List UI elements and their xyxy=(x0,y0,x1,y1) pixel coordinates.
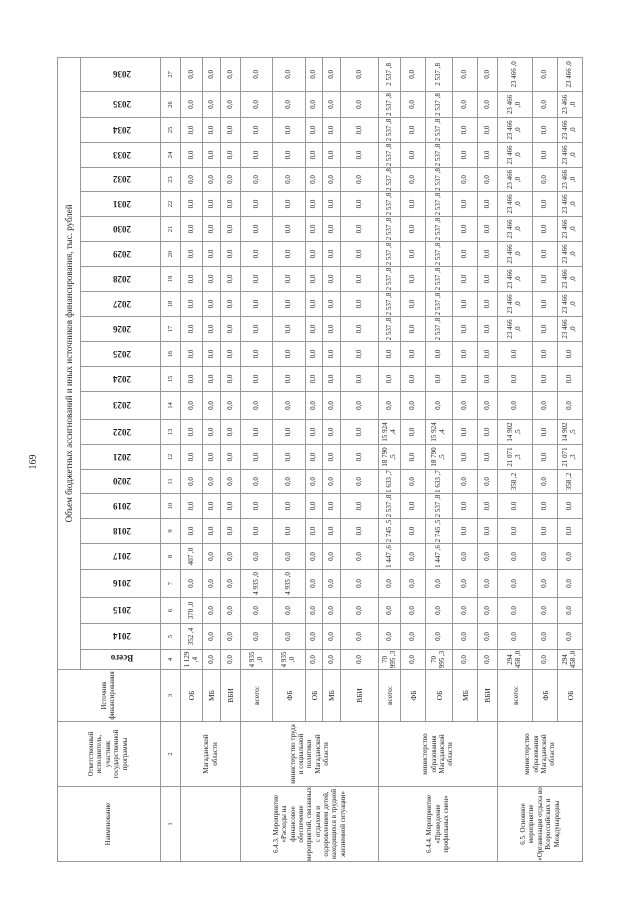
year-label: 2023 xyxy=(113,401,131,411)
value-cell: 0,0 xyxy=(273,445,306,470)
source-cell: ВБИ xyxy=(478,670,498,722)
value-cell: 0,0 xyxy=(533,192,558,217)
value-cell: 0,0 xyxy=(498,519,533,544)
value-cell: 0,0 xyxy=(401,317,426,342)
source-cell: всего: xyxy=(498,670,533,722)
value-cell: 0,0 xyxy=(221,217,241,242)
value-cell: 0,0 xyxy=(426,392,453,420)
value-cell: 0,0 xyxy=(181,168,203,192)
value-cell: 0,0 xyxy=(533,420,558,445)
value-cell: 23 466 ,0 xyxy=(558,57,583,91)
value-cell: 0,0 xyxy=(221,420,241,445)
value-cell: 0,0 xyxy=(221,168,241,192)
value-cell: 0,0 xyxy=(498,570,533,598)
column-number-cell: 24 xyxy=(161,143,181,168)
value-cell: 0,0 xyxy=(323,242,341,267)
value-cell: 0,0 xyxy=(341,267,379,292)
value-cell: 0,0 xyxy=(273,317,306,342)
value-cell: 0,0 xyxy=(533,92,558,118)
column-number-cell: 12 xyxy=(161,445,181,470)
value-cell: 1 633 ,7 xyxy=(426,470,453,494)
value-cell: 0,0 xyxy=(401,118,426,143)
source-cell: ОБ xyxy=(181,670,203,722)
value-cell: 2 745 ,5 xyxy=(426,519,453,544)
value-cell: 0,0 xyxy=(341,92,379,118)
value-cell: 2 537 ,8 xyxy=(426,57,453,91)
value-cell: 0,0 xyxy=(401,292,426,317)
value-cell: 0,0 xyxy=(221,367,241,392)
total-cell: 70 995 ,3 xyxy=(426,650,453,670)
value-cell: 0,0 xyxy=(181,267,203,292)
value-cell: 0,0 xyxy=(221,57,241,91)
value-cell: 0,0 xyxy=(453,292,478,317)
year-header: 2020 xyxy=(81,470,161,494)
value-cell: 0,0 xyxy=(241,598,273,624)
value-cell: 2 537 ,8 xyxy=(426,168,453,192)
value-cell: 0,0 xyxy=(478,317,498,342)
year-header: 2030 xyxy=(81,217,161,242)
year-label: 2021 xyxy=(113,452,131,462)
value-cell: 23 466 ,0 xyxy=(498,192,533,217)
value-cell: 0,0 xyxy=(241,494,273,519)
value-cell: 0,0 xyxy=(323,143,341,168)
value-cell: 0,0 xyxy=(181,292,203,317)
value-cell: 0,0 xyxy=(203,267,221,292)
value-cell: 0,0 xyxy=(478,624,498,650)
value-cell: 0,0 xyxy=(306,342,323,367)
value-cell: 0,0 xyxy=(341,168,379,192)
value-cell: 14 902 ,5 xyxy=(498,420,533,445)
value-cell: 0,0 xyxy=(241,470,273,494)
value-cell: 0,0 xyxy=(273,242,306,267)
year-label: 2028 xyxy=(113,274,131,284)
value-cell: 0,0 xyxy=(453,598,478,624)
value-cell: 23 466 ,0 xyxy=(558,242,583,267)
value-cell: 23 466 ,0 xyxy=(558,317,583,342)
value-cell: 0,0 xyxy=(221,624,241,650)
column-number-cell: 26 xyxy=(161,92,181,118)
column-number-cell: 20 xyxy=(161,242,181,267)
total-cell: 70 995 ,3 xyxy=(379,650,401,670)
year-label: 2033 xyxy=(113,150,131,160)
value-cell: 0,0 xyxy=(533,392,558,420)
value-cell: 0,0 xyxy=(478,118,498,143)
year-label: 2015 xyxy=(113,606,131,616)
value-cell: 0,0 xyxy=(273,420,306,445)
value-cell: 0,0 xyxy=(453,168,478,192)
value-cell: 0,0 xyxy=(533,544,558,570)
value-cell: 0,0 xyxy=(401,598,426,624)
value-cell: 0,0 xyxy=(203,392,221,420)
value-cell: 0,0 xyxy=(533,292,558,317)
value-cell: 0,0 xyxy=(221,445,241,470)
value-cell: 18 790 ,5 xyxy=(379,445,401,470)
value-cell: 0,0 xyxy=(401,57,426,91)
value-cell: 0,0 xyxy=(453,624,478,650)
value-cell: 0,0 xyxy=(241,57,273,91)
total-cell: 0,0 xyxy=(323,650,341,670)
value-cell: 0,0 xyxy=(533,494,558,519)
source-cell: ОБ xyxy=(558,670,583,722)
value-cell: 15 924 ,4 xyxy=(379,420,401,445)
year-header: 2036 xyxy=(81,57,161,91)
column-number-cell: 7 xyxy=(161,570,181,598)
value-cell: 0,0 xyxy=(341,57,379,91)
value-cell: 0,0 xyxy=(241,217,273,242)
value-cell: 0,0 xyxy=(341,292,379,317)
value-cell: 0,0 xyxy=(478,143,498,168)
value-cell: 0,0 xyxy=(533,143,558,168)
value-cell: 0,0 xyxy=(273,192,306,217)
value-cell: 0,0 xyxy=(306,519,323,544)
name-cell: 6.4.4. Мероприятие «Проведение профильны… xyxy=(379,787,498,862)
value-cell: 0,0 xyxy=(306,92,323,118)
value-cell: 0,0 xyxy=(379,367,401,392)
value-cell: 2 537 ,8 xyxy=(379,292,401,317)
header-source: Источник финансирования xyxy=(58,670,161,722)
value-cell: 0,0 xyxy=(426,342,453,367)
executor-cell: Магаданской области xyxy=(181,722,241,787)
value-cell: 0,0 xyxy=(558,570,583,598)
value-cell: 0,0 xyxy=(273,392,306,420)
source-cell: всего: xyxy=(241,670,273,722)
value-cell: 0,0 xyxy=(203,494,221,519)
value-cell: 0,0 xyxy=(401,494,426,519)
year-label: 2017 xyxy=(113,552,131,562)
value-cell: 0,0 xyxy=(306,217,323,242)
year-label: 2025 xyxy=(113,349,131,359)
value-cell: 0,0 xyxy=(426,570,453,598)
column-number-cell: 17 xyxy=(161,317,181,342)
total-cell: 0,0 xyxy=(221,650,241,670)
value-cell: 0,0 xyxy=(533,217,558,242)
column-number-cell: 16 xyxy=(161,342,181,367)
value-cell: 0,0 xyxy=(306,544,323,570)
year-label: 2034 xyxy=(113,125,131,135)
value-cell: 0,0 xyxy=(401,192,426,217)
value-cell: 0,0 xyxy=(478,544,498,570)
value-cell: 0,0 xyxy=(379,342,401,367)
value-cell: 0,0 xyxy=(241,168,273,192)
value-cell: 0,0 xyxy=(323,168,341,192)
value-cell: 0,0 xyxy=(203,624,221,650)
value-cell: 0,0 xyxy=(203,217,221,242)
value-cell: 0,0 xyxy=(323,470,341,494)
value-cell: 0,0 xyxy=(306,57,323,91)
value-cell: 0,0 xyxy=(478,292,498,317)
value-cell: 2 537 ,8 xyxy=(379,168,401,192)
value-cell: 0,0 xyxy=(341,494,379,519)
value-cell: 0,0 xyxy=(341,317,379,342)
value-cell: 0,0 xyxy=(273,519,306,544)
value-cell: 0,0 xyxy=(478,168,498,192)
value-cell: 0,0 xyxy=(323,292,341,317)
value-cell: 0,0 xyxy=(478,342,498,367)
year-label: 2018 xyxy=(113,526,131,536)
value-cell: 0,0 xyxy=(478,192,498,217)
value-cell: 0,0 xyxy=(273,624,306,650)
header-total: Всего xyxy=(81,650,161,670)
source-cell: всего: xyxy=(379,670,401,722)
value-cell: 0,0 xyxy=(241,392,273,420)
value-cell: 0,0 xyxy=(241,342,273,367)
year-header: 2033 xyxy=(81,143,161,168)
value-cell: 0,0 xyxy=(401,570,426,598)
value-cell: 0,0 xyxy=(478,420,498,445)
value-cell: 0,0 xyxy=(241,519,273,544)
source-cell: МБ xyxy=(453,670,478,722)
value-cell: 0,0 xyxy=(203,445,221,470)
value-cell: 0,0 xyxy=(323,192,341,217)
value-cell: 0,0 xyxy=(498,367,533,392)
value-cell: 23 466 ,0 xyxy=(558,267,583,292)
value-cell: 0,0 xyxy=(341,470,379,494)
value-cell: 0,0 xyxy=(401,267,426,292)
year-label: 2019 xyxy=(113,501,131,511)
value-cell: 0,0 xyxy=(203,242,221,267)
column-number-cell: 11 xyxy=(161,470,181,494)
year-header: 2023 xyxy=(81,392,161,420)
value-cell: 21 071 ,3 xyxy=(558,445,583,470)
value-cell: 0,0 xyxy=(203,143,221,168)
value-cell: 0,0 xyxy=(241,367,273,392)
value-cell: 0,0 xyxy=(478,445,498,470)
value-cell: 0,0 xyxy=(401,470,426,494)
value-cell: 0,0 xyxy=(221,92,241,118)
table-row: 6.4.4. Мероприятие «Проведение профильны… xyxy=(379,57,401,861)
header-executor: Ответственный исполнитель, участник госу… xyxy=(58,722,161,787)
year-header: 2022 xyxy=(81,420,161,445)
value-cell: 0,0 xyxy=(181,470,203,494)
total-cell: 4 935 ,0 xyxy=(241,650,273,670)
value-cell: 4 935 ,0 xyxy=(241,570,273,598)
value-cell: 0,0 xyxy=(453,317,478,342)
value-cell: 0,0 xyxy=(401,217,426,242)
value-cell: 0,0 xyxy=(221,342,241,367)
source-cell: МБ xyxy=(203,670,221,722)
total-cell: 0,0 xyxy=(203,650,221,670)
value-cell: 0,0 xyxy=(241,143,273,168)
value-cell: 0,0 xyxy=(306,267,323,292)
value-cell: 2 537 ,8 xyxy=(426,192,453,217)
value-cell: 0,0 xyxy=(323,392,341,420)
value-cell: 2 537 ,8 xyxy=(426,217,453,242)
value-cell: 0,0 xyxy=(306,118,323,143)
value-cell: 0,0 xyxy=(323,342,341,367)
total-cell: 0,0 xyxy=(533,650,558,670)
value-cell: 0,0 xyxy=(498,544,533,570)
value-cell: 0,0 xyxy=(453,445,478,470)
value-cell: 0,0 xyxy=(273,494,306,519)
value-cell: 0,0 xyxy=(478,92,498,118)
value-cell: 0,0 xyxy=(341,544,379,570)
year-header: 2028 xyxy=(81,267,161,292)
value-cell: 0,0 xyxy=(181,242,203,267)
value-cell: 0,0 xyxy=(323,544,341,570)
value-cell: 0,0 xyxy=(273,217,306,242)
value-cell: 1 447 ,6 xyxy=(379,544,401,570)
column-number-cell: 2 xyxy=(161,722,181,787)
value-cell: 0,0 xyxy=(341,367,379,392)
column-number-cell: 15 xyxy=(161,367,181,392)
value-cell: 0,0 xyxy=(306,143,323,168)
value-cell: 0,0 xyxy=(323,267,341,292)
value-cell: 0,0 xyxy=(323,519,341,544)
value-cell: 0,0 xyxy=(478,217,498,242)
page-number: 169 xyxy=(20,447,46,477)
value-cell: 0,0 xyxy=(323,598,341,624)
value-cell: 23 466 ,0 xyxy=(558,92,583,118)
value-cell: 0,0 xyxy=(241,118,273,143)
value-cell: 2 537 ,8 xyxy=(426,92,453,118)
value-cell: 0,0 xyxy=(478,470,498,494)
value-cell: 0,0 xyxy=(533,242,558,267)
column-number-cell: 1 xyxy=(161,787,181,862)
value-cell: 0,0 xyxy=(203,570,221,598)
value-cell: 0,0 xyxy=(341,624,379,650)
year-header: 2019 xyxy=(81,494,161,519)
value-cell: 0,0 xyxy=(306,168,323,192)
value-cell: 0,0 xyxy=(453,118,478,143)
value-cell: 2 537 ,8 xyxy=(426,267,453,292)
column-number-cell: 4 xyxy=(161,650,181,670)
value-cell: 0,0 xyxy=(203,92,221,118)
value-cell: 0,0 xyxy=(323,420,341,445)
value-cell: 0,0 xyxy=(498,494,533,519)
value-cell: 0,0 xyxy=(426,598,453,624)
value-cell: 0,0 xyxy=(341,392,379,420)
value-cell: 0,0 xyxy=(221,267,241,292)
value-cell: 23 466 ,0 xyxy=(498,143,533,168)
value-cell: 23 466 ,0 xyxy=(498,267,533,292)
value-cell: 0,0 xyxy=(306,470,323,494)
value-cell: 15 924 ,4 xyxy=(426,420,453,445)
value-cell: 0,0 xyxy=(241,445,273,470)
value-cell: 0,0 xyxy=(306,367,323,392)
value-cell: 0,0 xyxy=(401,367,426,392)
value-cell: 0,0 xyxy=(323,92,341,118)
value-cell: 0,0 xyxy=(306,445,323,470)
value-cell: 0,0 xyxy=(401,242,426,267)
value-cell: 0,0 xyxy=(306,420,323,445)
value-cell: 2 537 ,8 xyxy=(379,242,401,267)
value-cell: 2 537 ,8 xyxy=(379,317,401,342)
value-cell: 0,0 xyxy=(203,519,221,544)
value-cell: 0,0 xyxy=(306,598,323,624)
source-cell: ОБ xyxy=(306,670,323,722)
value-cell: 0,0 xyxy=(533,624,558,650)
total-cell: 0,0 xyxy=(478,650,498,670)
value-cell: 0,0 xyxy=(453,420,478,445)
value-cell: 2 537 ,8 xyxy=(379,192,401,217)
value-cell: 0,0 xyxy=(341,570,379,598)
value-cell: 0,0 xyxy=(533,570,558,598)
value-cell: 0,0 xyxy=(558,519,583,544)
year-header: 2018 xyxy=(81,519,161,544)
value-cell: 0,0 xyxy=(498,392,533,420)
value-cell: 0,0 xyxy=(401,342,426,367)
value-cell: 0,0 xyxy=(203,292,221,317)
value-cell: 0,0 xyxy=(221,292,241,317)
value-cell: 0,0 xyxy=(341,192,379,217)
value-cell: 0,0 xyxy=(241,92,273,118)
value-cell: 0,0 xyxy=(341,598,379,624)
value-cell: 0,0 xyxy=(203,367,221,392)
value-cell: 2 537 ,8 xyxy=(379,57,401,91)
value-cell: 0,0 xyxy=(478,570,498,598)
value-cell: 0,0 xyxy=(221,192,241,217)
value-cell: 0,0 xyxy=(306,392,323,420)
source-cell: ФБ xyxy=(533,670,558,722)
value-cell: 0,0 xyxy=(203,420,221,445)
column-number-cell: 14 xyxy=(161,392,181,420)
value-cell: 23 466 ,0 xyxy=(558,292,583,317)
value-cell: 0,0 xyxy=(306,292,323,317)
value-cell: 0,0 xyxy=(478,57,498,91)
value-cell: 0,0 xyxy=(323,570,341,598)
value-cell: 0,0 xyxy=(453,267,478,292)
source-cell: ОБ xyxy=(426,670,453,722)
value-cell: 0,0 xyxy=(453,392,478,420)
value-cell: 0,0 xyxy=(341,217,379,242)
value-cell: 0,0 xyxy=(426,624,453,650)
total-cell: 294 458 ,0 xyxy=(558,650,583,670)
column-number-cell: 22 xyxy=(161,192,181,217)
value-cell: 2 537 ,8 xyxy=(379,92,401,118)
value-cell: 0,0 xyxy=(558,624,583,650)
value-cell: 0,0 xyxy=(558,544,583,570)
total-cell: 4 935 ,0 xyxy=(273,650,306,670)
table-row: Магаданской областиОБ1 129 ,4352 ,4370 ,… xyxy=(181,57,203,861)
value-cell: 0,0 xyxy=(453,544,478,570)
year-label: 2020 xyxy=(113,477,131,487)
value-cell: 0,0 xyxy=(401,168,426,192)
value-cell: 23 466 ,0 xyxy=(558,168,583,192)
column-number-cell: 8 xyxy=(161,544,181,570)
value-cell: 0,0 xyxy=(241,192,273,217)
value-cell: 0,0 xyxy=(401,392,426,420)
value-cell: 2 537 ,8 xyxy=(426,118,453,143)
value-cell: 0,0 xyxy=(379,392,401,420)
value-cell: 0,0 xyxy=(181,118,203,143)
value-cell: 0,0 xyxy=(453,192,478,217)
value-cell: 0,0 xyxy=(273,92,306,118)
value-cell: 23 466 ,0 xyxy=(498,292,533,317)
value-cell: 0,0 xyxy=(341,445,379,470)
document-page: 169 НаименованиеОтветственный исполнител… xyxy=(0,0,640,905)
value-cell: 0,0 xyxy=(453,242,478,267)
value-cell: 0,0 xyxy=(273,598,306,624)
value-cell: 0,0 xyxy=(323,494,341,519)
value-cell: 23 466 ,0 xyxy=(498,242,533,267)
total-cell: 0,0 xyxy=(453,650,478,670)
value-cell: 0,0 xyxy=(306,317,323,342)
value-cell: 0,0 xyxy=(241,292,273,317)
value-cell: 0,0 xyxy=(241,544,273,570)
value-cell: 0,0 xyxy=(221,143,241,168)
value-cell: 23 466 ,0 xyxy=(498,57,533,91)
value-cell: 2 537 ,8 xyxy=(379,118,401,143)
value-cell: 0,0 xyxy=(426,367,453,392)
value-cell: 0,0 xyxy=(203,470,221,494)
value-cell: 0,0 xyxy=(533,57,558,91)
value-cell: 0,0 xyxy=(533,342,558,367)
value-cell: 2 537 ,8 xyxy=(379,143,401,168)
column-number-cell: 13 xyxy=(161,420,181,445)
value-cell: 358 ,2 xyxy=(498,470,533,494)
value-cell: 0,0 xyxy=(401,519,426,544)
executor-cell: министерство труда и социальной политики… xyxy=(241,722,379,787)
